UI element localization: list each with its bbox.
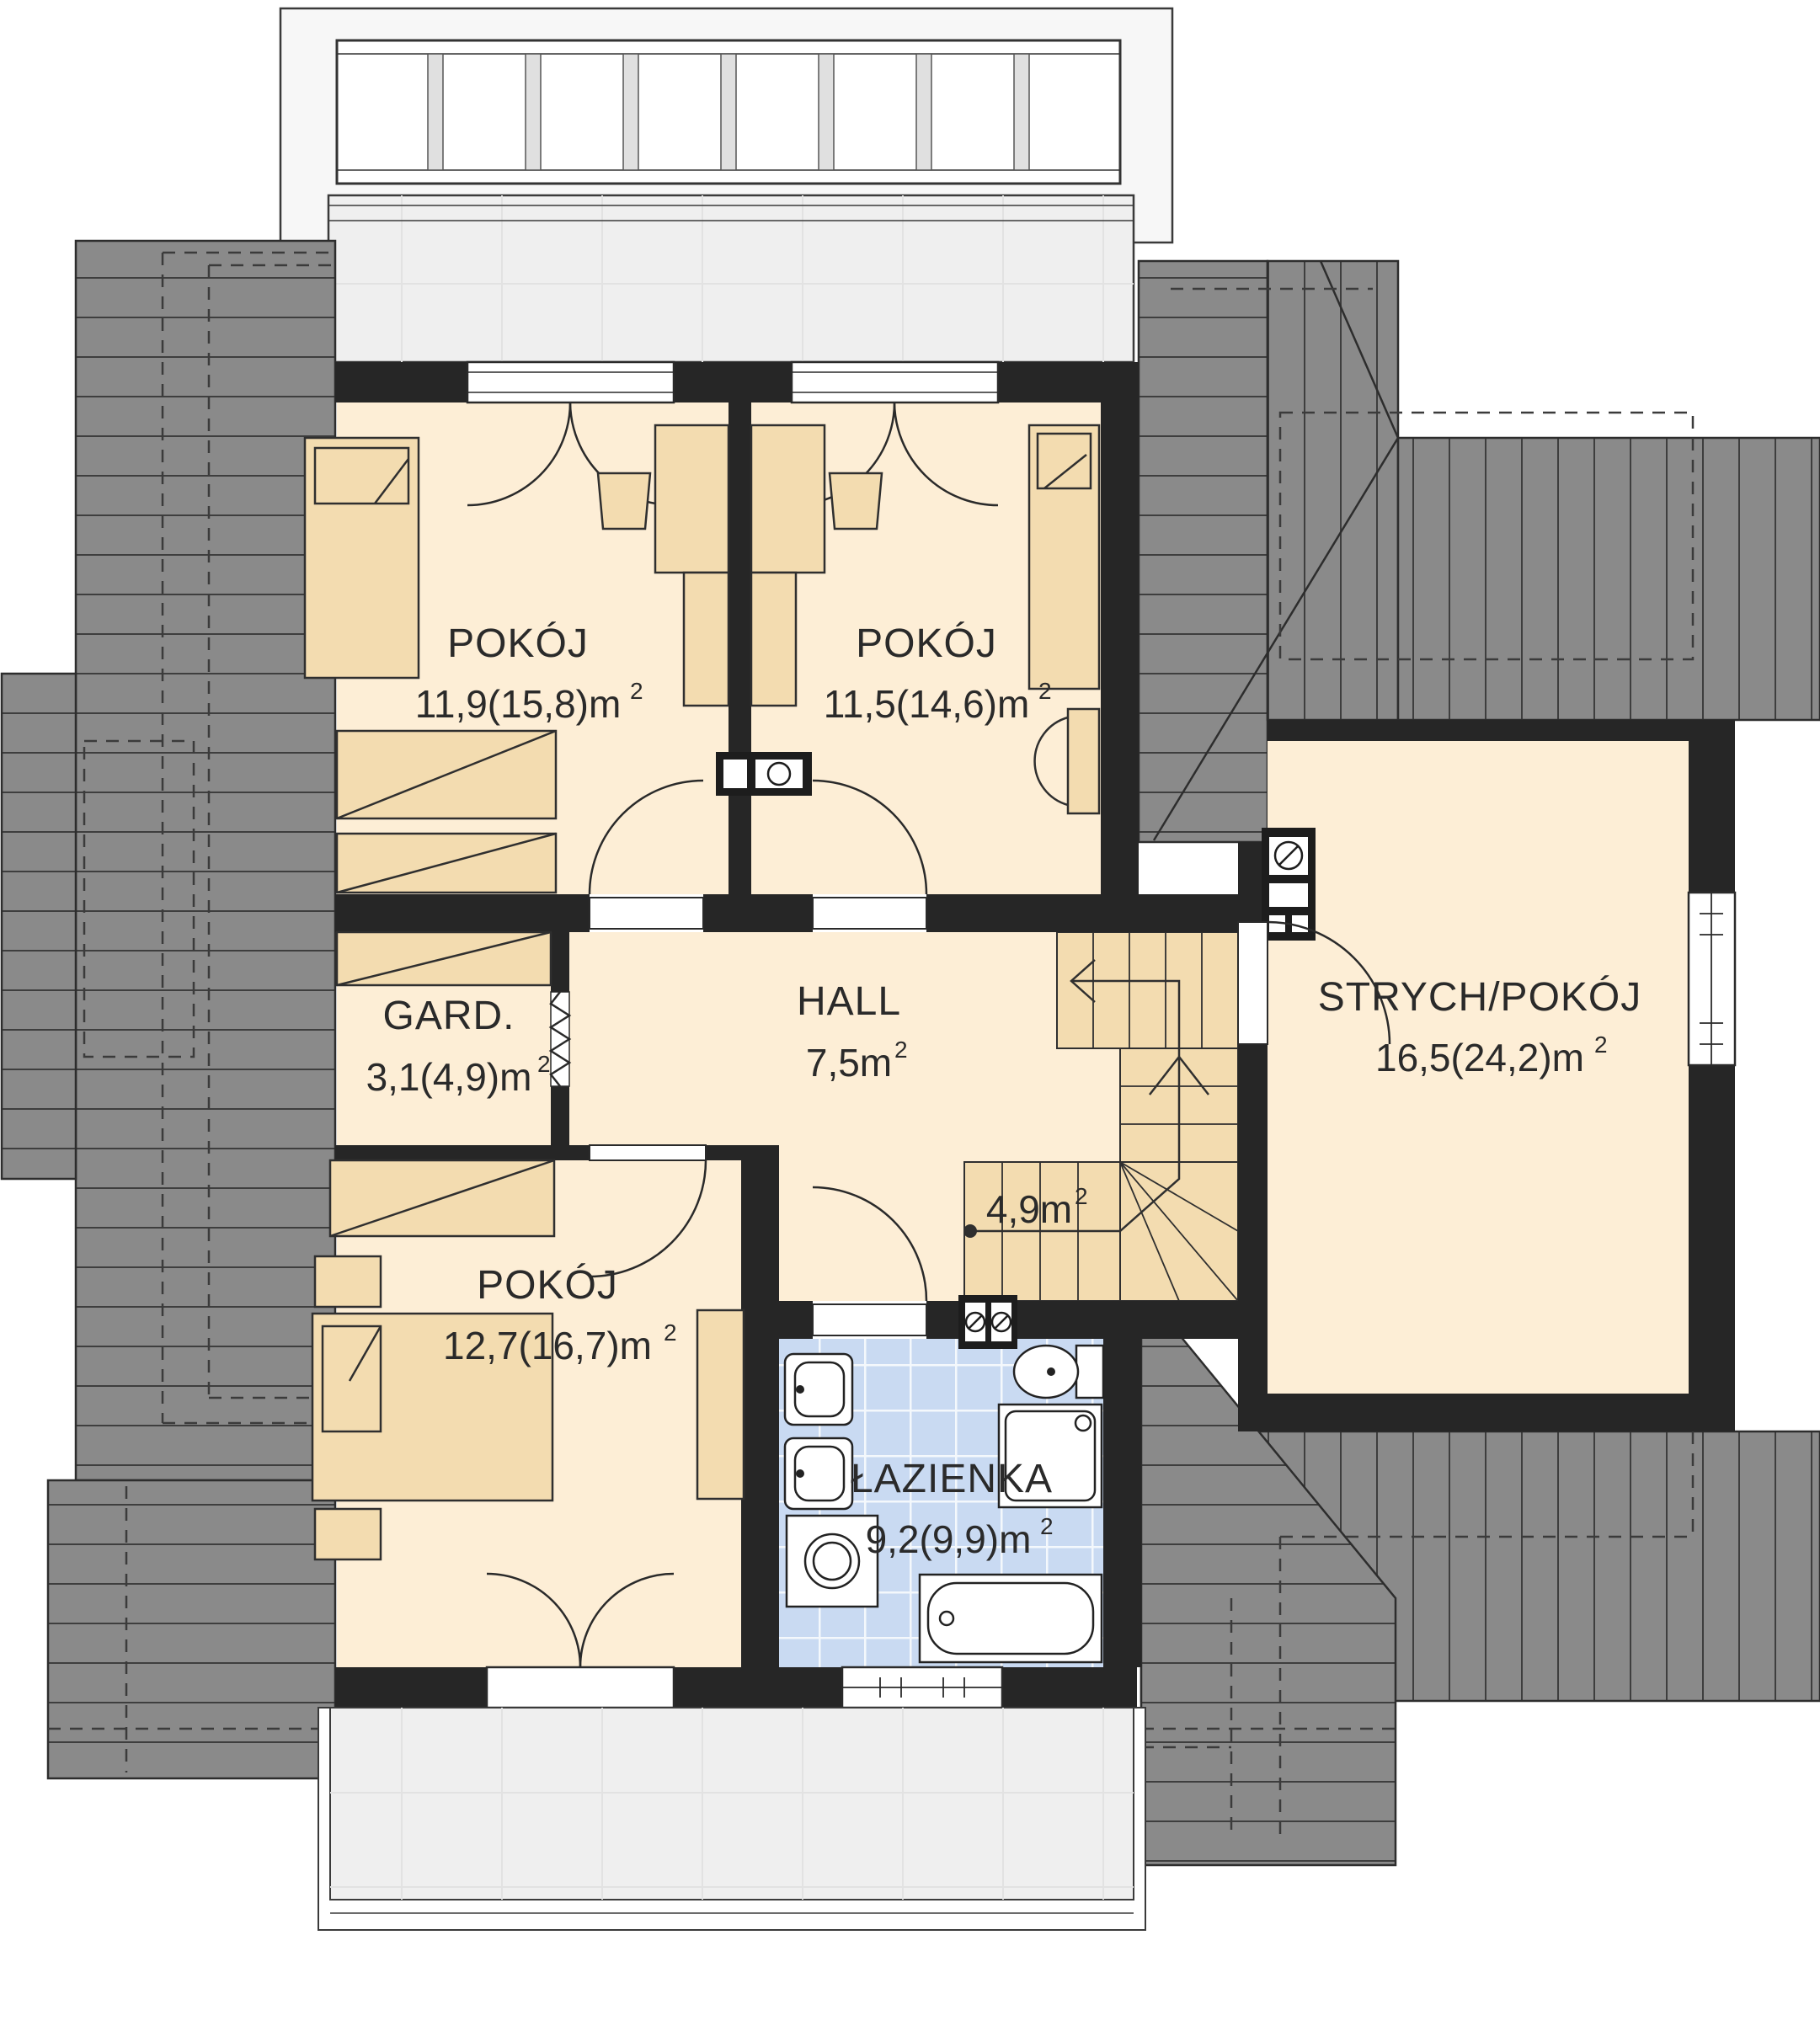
wall-strych-top xyxy=(1268,720,1735,741)
room-label-strych: STRYCH/POKÓJ xyxy=(1318,974,1642,1020)
wall-mid xyxy=(926,894,1268,932)
room-area-sup-lazienka: 2 xyxy=(1040,1513,1054,1539)
nightstand-pokoj3 xyxy=(315,1509,381,1559)
room-area-strych: 16,5(24,2)m xyxy=(1375,1036,1584,1079)
room-label-gard: GARD. xyxy=(382,994,515,1038)
chimney-flue-block-bathroom xyxy=(958,1295,1017,1349)
balcony-bottom xyxy=(318,1708,1145,1930)
floor-plan-page: POKÓJ 11,9(15,8)m 2 POKÓJ 11,5(14,6)m 2 … xyxy=(0,0,1820,2031)
chair-pokoj2 xyxy=(830,473,882,529)
room-area-sup-hall: 2 xyxy=(894,1037,908,1063)
balcony-railing xyxy=(337,40,1120,184)
toilet xyxy=(1014,1346,1103,1398)
room-area-pokoj2: 11,5(14,6)m xyxy=(824,682,1030,726)
room-label-pokoj3: POKÓJ xyxy=(477,1262,618,1308)
room-area-gard: 3,1(4,9)m xyxy=(366,1055,532,1099)
wall-strych-left xyxy=(1238,1044,1268,1431)
wall-strych-right xyxy=(1689,1065,1735,1394)
room-area-stairwell: 4,9m xyxy=(986,1187,1072,1231)
room-area-sup-strych: 2 xyxy=(1594,1031,1608,1058)
wall-bathroom-right xyxy=(1103,1301,1141,1667)
room-label-pokoj1: POKÓJ xyxy=(447,621,589,666)
shelf-pokoj3 xyxy=(697,1310,744,1499)
wall-strych-bottom xyxy=(1268,1394,1735,1431)
bathtub xyxy=(920,1575,1102,1662)
bed-pokoj1 xyxy=(305,438,419,678)
room-area-hall: 7,5m xyxy=(806,1041,892,1085)
chair-pokoj1 xyxy=(598,473,650,529)
roof-left xyxy=(2,241,335,1778)
window-lazienka xyxy=(842,1667,1002,1708)
stairs-landing xyxy=(1057,932,1238,1048)
room-area-sup-gard: 2 xyxy=(537,1051,551,1077)
bed-pokoj2 xyxy=(1029,425,1099,689)
folding-door-gard xyxy=(551,992,569,1086)
room-area-sup-pokoj2: 2 xyxy=(1038,678,1052,704)
room-area-lazienka: 9,2(9,9)m xyxy=(866,1517,1032,1561)
room-area-pokoj3: 12,7(16,7)m xyxy=(443,1324,652,1367)
washing-machine xyxy=(787,1516,878,1607)
wall-pokoj3-right xyxy=(741,1145,779,1667)
wall-gard-bottom xyxy=(706,1145,741,1160)
wall-gard-right xyxy=(551,1086,569,1145)
window-strych xyxy=(1689,893,1735,1065)
wall-pokoj2-right xyxy=(1101,362,1139,894)
balcony-top-floor xyxy=(328,195,1134,362)
floor-plan-drawing: POKÓJ 11,9(15,8)m 2 POKÓJ 11,5(14,6)m 2 … xyxy=(0,0,1820,2031)
room-label-lazienka: ŁAZIENKA xyxy=(851,1457,1053,1501)
room-area-sup-pokoj3: 2 xyxy=(664,1319,677,1346)
nightstand-pokoj3 xyxy=(315,1256,381,1307)
balcony-top xyxy=(280,8,1172,362)
wall-top-exterior xyxy=(335,362,1137,402)
stairs-path-start-dot xyxy=(964,1225,976,1237)
washbasin-1 xyxy=(785,1354,852,1425)
chimney-flue-block-rooms xyxy=(716,752,812,796)
wall-room-divider xyxy=(729,402,751,894)
room-area-pokoj1: 11,9(15,8)m xyxy=(415,682,622,726)
room-area-sup-pokoj1: 2 xyxy=(630,678,643,704)
room-area-sup-stairwell: 2 xyxy=(1075,1183,1088,1209)
room-label-hall: HALL xyxy=(797,979,901,1024)
room-label-pokoj2: POKÓJ xyxy=(856,621,997,666)
washbasin-2 xyxy=(785,1438,852,1509)
wall-bottom-exterior xyxy=(1002,1667,1137,1708)
